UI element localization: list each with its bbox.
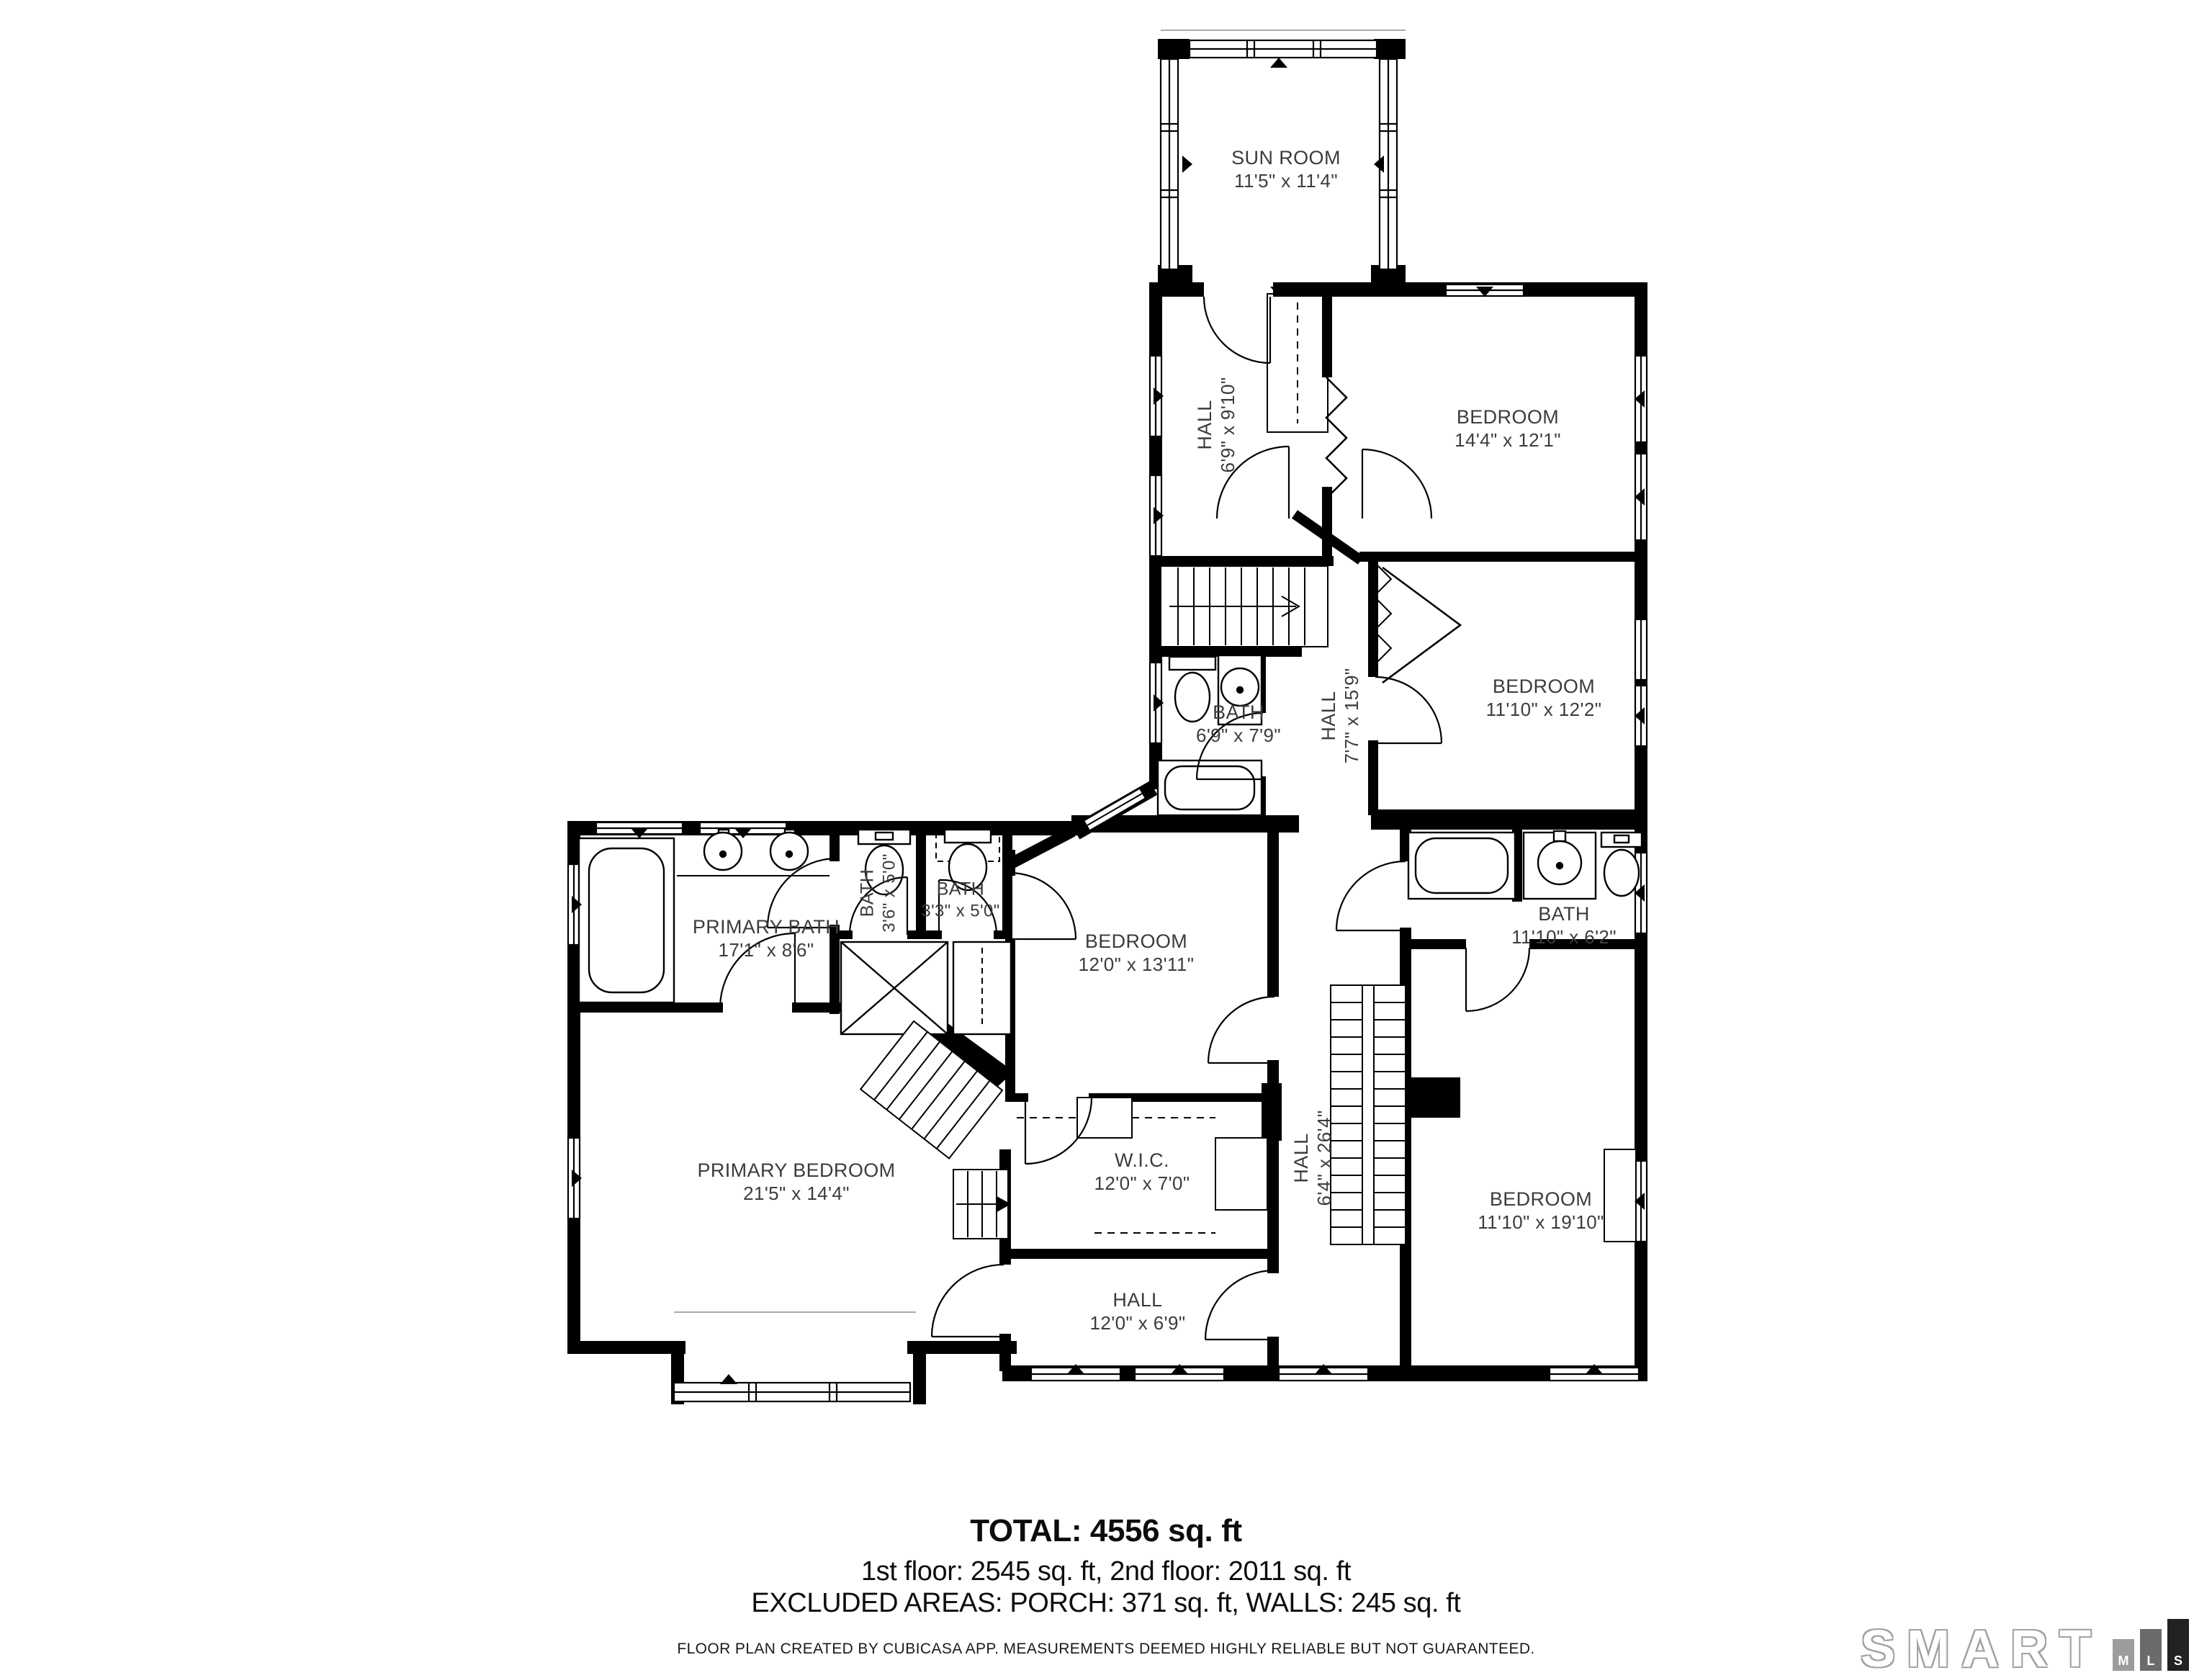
mls-bar-m: M [2113,1639,2134,1671]
room-label-bath-3: BATH 11'10" x 6'2" [1511,902,1617,951]
room-label-bath-small-1: BATH 3'6" x 5'0" [856,853,902,932]
room-label-bedroom-4: BEDROOM 11'10" x 19'10" [1478,1187,1604,1236]
room-label-bedroom-3: BEDROOM 12'0" x 13'11" [1079,929,1195,978]
total-area-text: TOTAL: 4556 sq. ft [0,1512,2212,1550]
room-label-bedroom-1: BEDROOM 14'4" x 12'1" [1455,405,1561,454]
room-label-sun-room: SUN ROOM 11'5" x 11'4" [1231,145,1341,194]
room-label-bath-small-2: BATH 3'3" x 5'0" [921,878,999,923]
mls-bars: M L S [2113,1619,2189,1675]
room-label-hall-bottom: HALL 12'0" x 6'9" [1090,1288,1186,1337]
room-label-bath-upper: BATH 6'9" x 7'9" [1196,700,1281,749]
room-label-primary-bath: PRIMARY BATH 17'1" x 8'6" [693,915,840,964]
floor-plan-page: SUN ROOM 11'5" x 11'4" HALL 6'9" x 9'10"… [0,0,2212,1659]
room-label-hall-mid: HALL 7'7" x 15'9" [1316,668,1365,764]
room-label-bedroom-2: BEDROOM 11'10" x 12'2" [1486,674,1602,723]
floor-plan-canvas [0,0,2212,1659]
mls-bar-s: S [2167,1619,2189,1671]
area-summary: TOTAL: 4556 sq. ft 1st floor: 2545 sq. f… [0,1512,2212,1622]
room-label-hall-upper: HALL 6'9" x 9'10" [1192,377,1241,473]
excluded-areas-text: EXCLUDED AREAS: PORCH: 371 sq. ft, WALLS… [0,1589,2212,1622]
room-label-primary-bedroom: PRIMARY BEDROOM 21'5" x 14'4" [697,1158,895,1207]
smart-mls-logo: SMART M L S [1861,1619,2189,1675]
room-label-hall-lower: HALL 6'4" x 26'4" [1289,1111,1338,1206]
smart-wordmark: SMART [1861,1623,2103,1675]
mls-bar-l: L [2140,1629,2162,1671]
room-label-wic: W.I.C. 12'0" x 7'0" [1094,1148,1190,1197]
floor-areas-text: 1st floor: 2545 sq. ft, 2nd floor: 2011 … [0,1557,2212,1589]
